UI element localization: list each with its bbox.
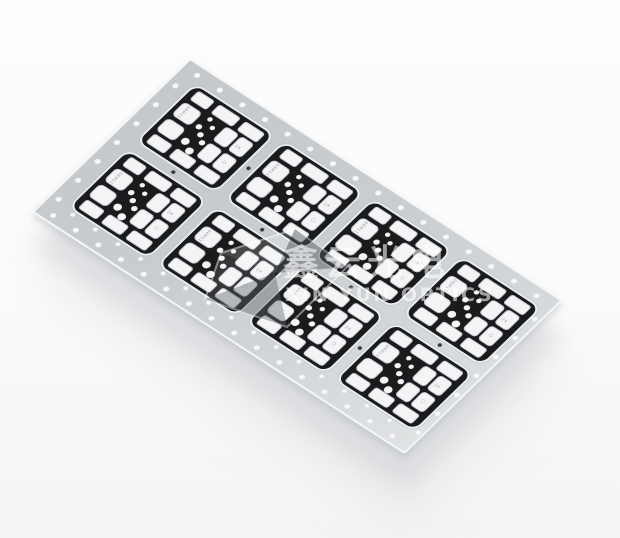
sprocket-hole [151, 101, 160, 108]
via-pad-dot [306, 312, 315, 319]
via-pad-dot [462, 304, 471, 311]
sprocket-hole [91, 226, 99, 232]
fiducial-dot [437, 343, 443, 348]
sprocket-hole [132, 120, 141, 127]
via-pad-dot [386, 240, 394, 246]
via-pad-dot [127, 189, 136, 196]
sprocket-hole [509, 277, 518, 284]
via-pad-dot [268, 194, 280, 204]
via-pad-dot [227, 240, 235, 246]
sprocket-hole [94, 241, 103, 248]
via-pad-dot [141, 191, 149, 197]
sprocket-hole [396, 204, 405, 211]
sprocket-hole [306, 145, 315, 152]
via-pad-dot [111, 202, 123, 212]
edge-tab-pad [231, 227, 262, 250]
via-pad-dot [304, 304, 313, 311]
sprocket-hole [295, 358, 303, 364]
via-pad-dot [289, 318, 301, 328]
sprocket-hole [116, 256, 125, 263]
sprocket-hole [283, 131, 292, 138]
sprocket-hole [414, 429, 423, 436]
sprocket-hole [192, 72, 201, 79]
sprocket-hole [433, 410, 442, 417]
sprocket-hole [318, 373, 326, 379]
sprocket-hole [137, 255, 145, 261]
via-pad-dot [378, 375, 390, 385]
via-pad-dot [405, 355, 413, 361]
sprocket-hole [171, 82, 180, 89]
edge-tab-pad [320, 285, 351, 308]
edge-tab-pad [142, 170, 173, 193]
sprocket-hole [272, 343, 280, 349]
sprocket-hole [373, 189, 382, 196]
sprocket-hole [530, 315, 539, 322]
sprocket-hole [252, 344, 261, 351]
via-pad-dot [318, 306, 326, 312]
photo-stage: 08M11 2X ◇ 08M11 2X ◇ [0, 0, 620, 538]
via-pad-dot [473, 289, 481, 295]
via-pad-dot [194, 123, 203, 130]
sprocket-hole [464, 248, 473, 255]
sprocket-hole [297, 373, 306, 380]
sprocket-hole [229, 329, 238, 336]
sprocket-hole [487, 263, 496, 270]
sprocket-hole [441, 233, 450, 240]
sprocket-hole [250, 329, 258, 335]
via-pad-dot [372, 238, 381, 245]
sprocket-hole [260, 116, 269, 123]
sprocket-hole [69, 211, 77, 217]
via-pad-dot [373, 246, 382, 253]
fiducial-dot [357, 346, 363, 351]
sprocket-hole [71, 226, 80, 233]
sprocket-hole [351, 175, 360, 182]
via-pad-dot [316, 297, 324, 303]
sprocket-hole [320, 388, 329, 395]
sprocket-hole [388, 432, 397, 439]
sprocket-hole [93, 158, 102, 165]
sprocket-hole [472, 372, 481, 379]
via-pad-dot [196, 131, 205, 138]
via-pad-dot [138, 182, 146, 188]
via-pad-dot [283, 181, 292, 188]
via-pad-dot [206, 116, 214, 122]
sprocket-hole [238, 101, 247, 108]
via-pad-dot [395, 370, 404, 377]
via-pad-dot [215, 247, 224, 254]
sprocket-hole [54, 196, 63, 203]
via-pad-dot [461, 296, 470, 303]
edge-tab-pad [477, 277, 508, 300]
via-pad-dot [446, 309, 458, 319]
edge-tab-pad [409, 343, 440, 366]
sprocket-hole [532, 292, 541, 299]
via-pad-dot [230, 248, 238, 254]
fiducial-dot [245, 166, 251, 171]
sprocket-hole [340, 387, 348, 393]
sprocket-hole [491, 353, 500, 360]
via-pad-dot [208, 125, 216, 131]
sprocket-hole [73, 177, 82, 184]
sprocket-hole [386, 417, 394, 423]
sprocket-hole [511, 334, 520, 341]
via-pad-dot [407, 364, 415, 370]
fiducial-dot [348, 285, 354, 290]
fiducial-dot [259, 227, 265, 232]
via-pad-dot [128, 197, 137, 204]
sprocket-hole [112, 139, 121, 146]
via-pad-dot [384, 232, 392, 238]
sprocket-hole [419, 219, 428, 226]
sprocket-hole [207, 315, 216, 322]
sprocket-hole [139, 271, 148, 278]
sprocket-hole [205, 299, 213, 305]
sprocket-hole [452, 391, 461, 398]
sprocket-hole [162, 285, 171, 292]
via-pad-dot [357, 252, 369, 262]
pcb-carrier-panel: 08M11 2X ◇ 08M11 2X ◇ [32, 58, 563, 454]
via-pad-dot [217, 255, 226, 262]
via-pad-dot [285, 189, 294, 196]
via-pad-dot [179, 136, 191, 146]
sprocket-hole [227, 314, 235, 320]
sprocket-hole [48, 212, 57, 219]
sprocket-hole [363, 402, 371, 408]
via-pad-dot [200, 260, 212, 270]
sprocket-hole [159, 270, 167, 276]
sprocket-hole [184, 300, 193, 307]
edge-tab-pad [210, 104, 241, 127]
sprocket-hole [343, 403, 352, 410]
edge-tab-pad [299, 162, 330, 185]
fiducial-dot [170, 170, 176, 175]
via-pad-dot [475, 298, 483, 304]
sprocket-hole [365, 417, 374, 424]
sprocket-hole [114, 240, 122, 246]
via-pad-dot [295, 174, 303, 180]
via-pad-dot [297, 183, 305, 189]
edge-tab-pad [388, 219, 419, 242]
sprocket-hole [182, 284, 190, 290]
sprocket-hole [275, 359, 284, 366]
via-pad-dot [393, 362, 402, 369]
sprocket-hole [215, 86, 224, 93]
sprocket-hole [328, 160, 337, 167]
